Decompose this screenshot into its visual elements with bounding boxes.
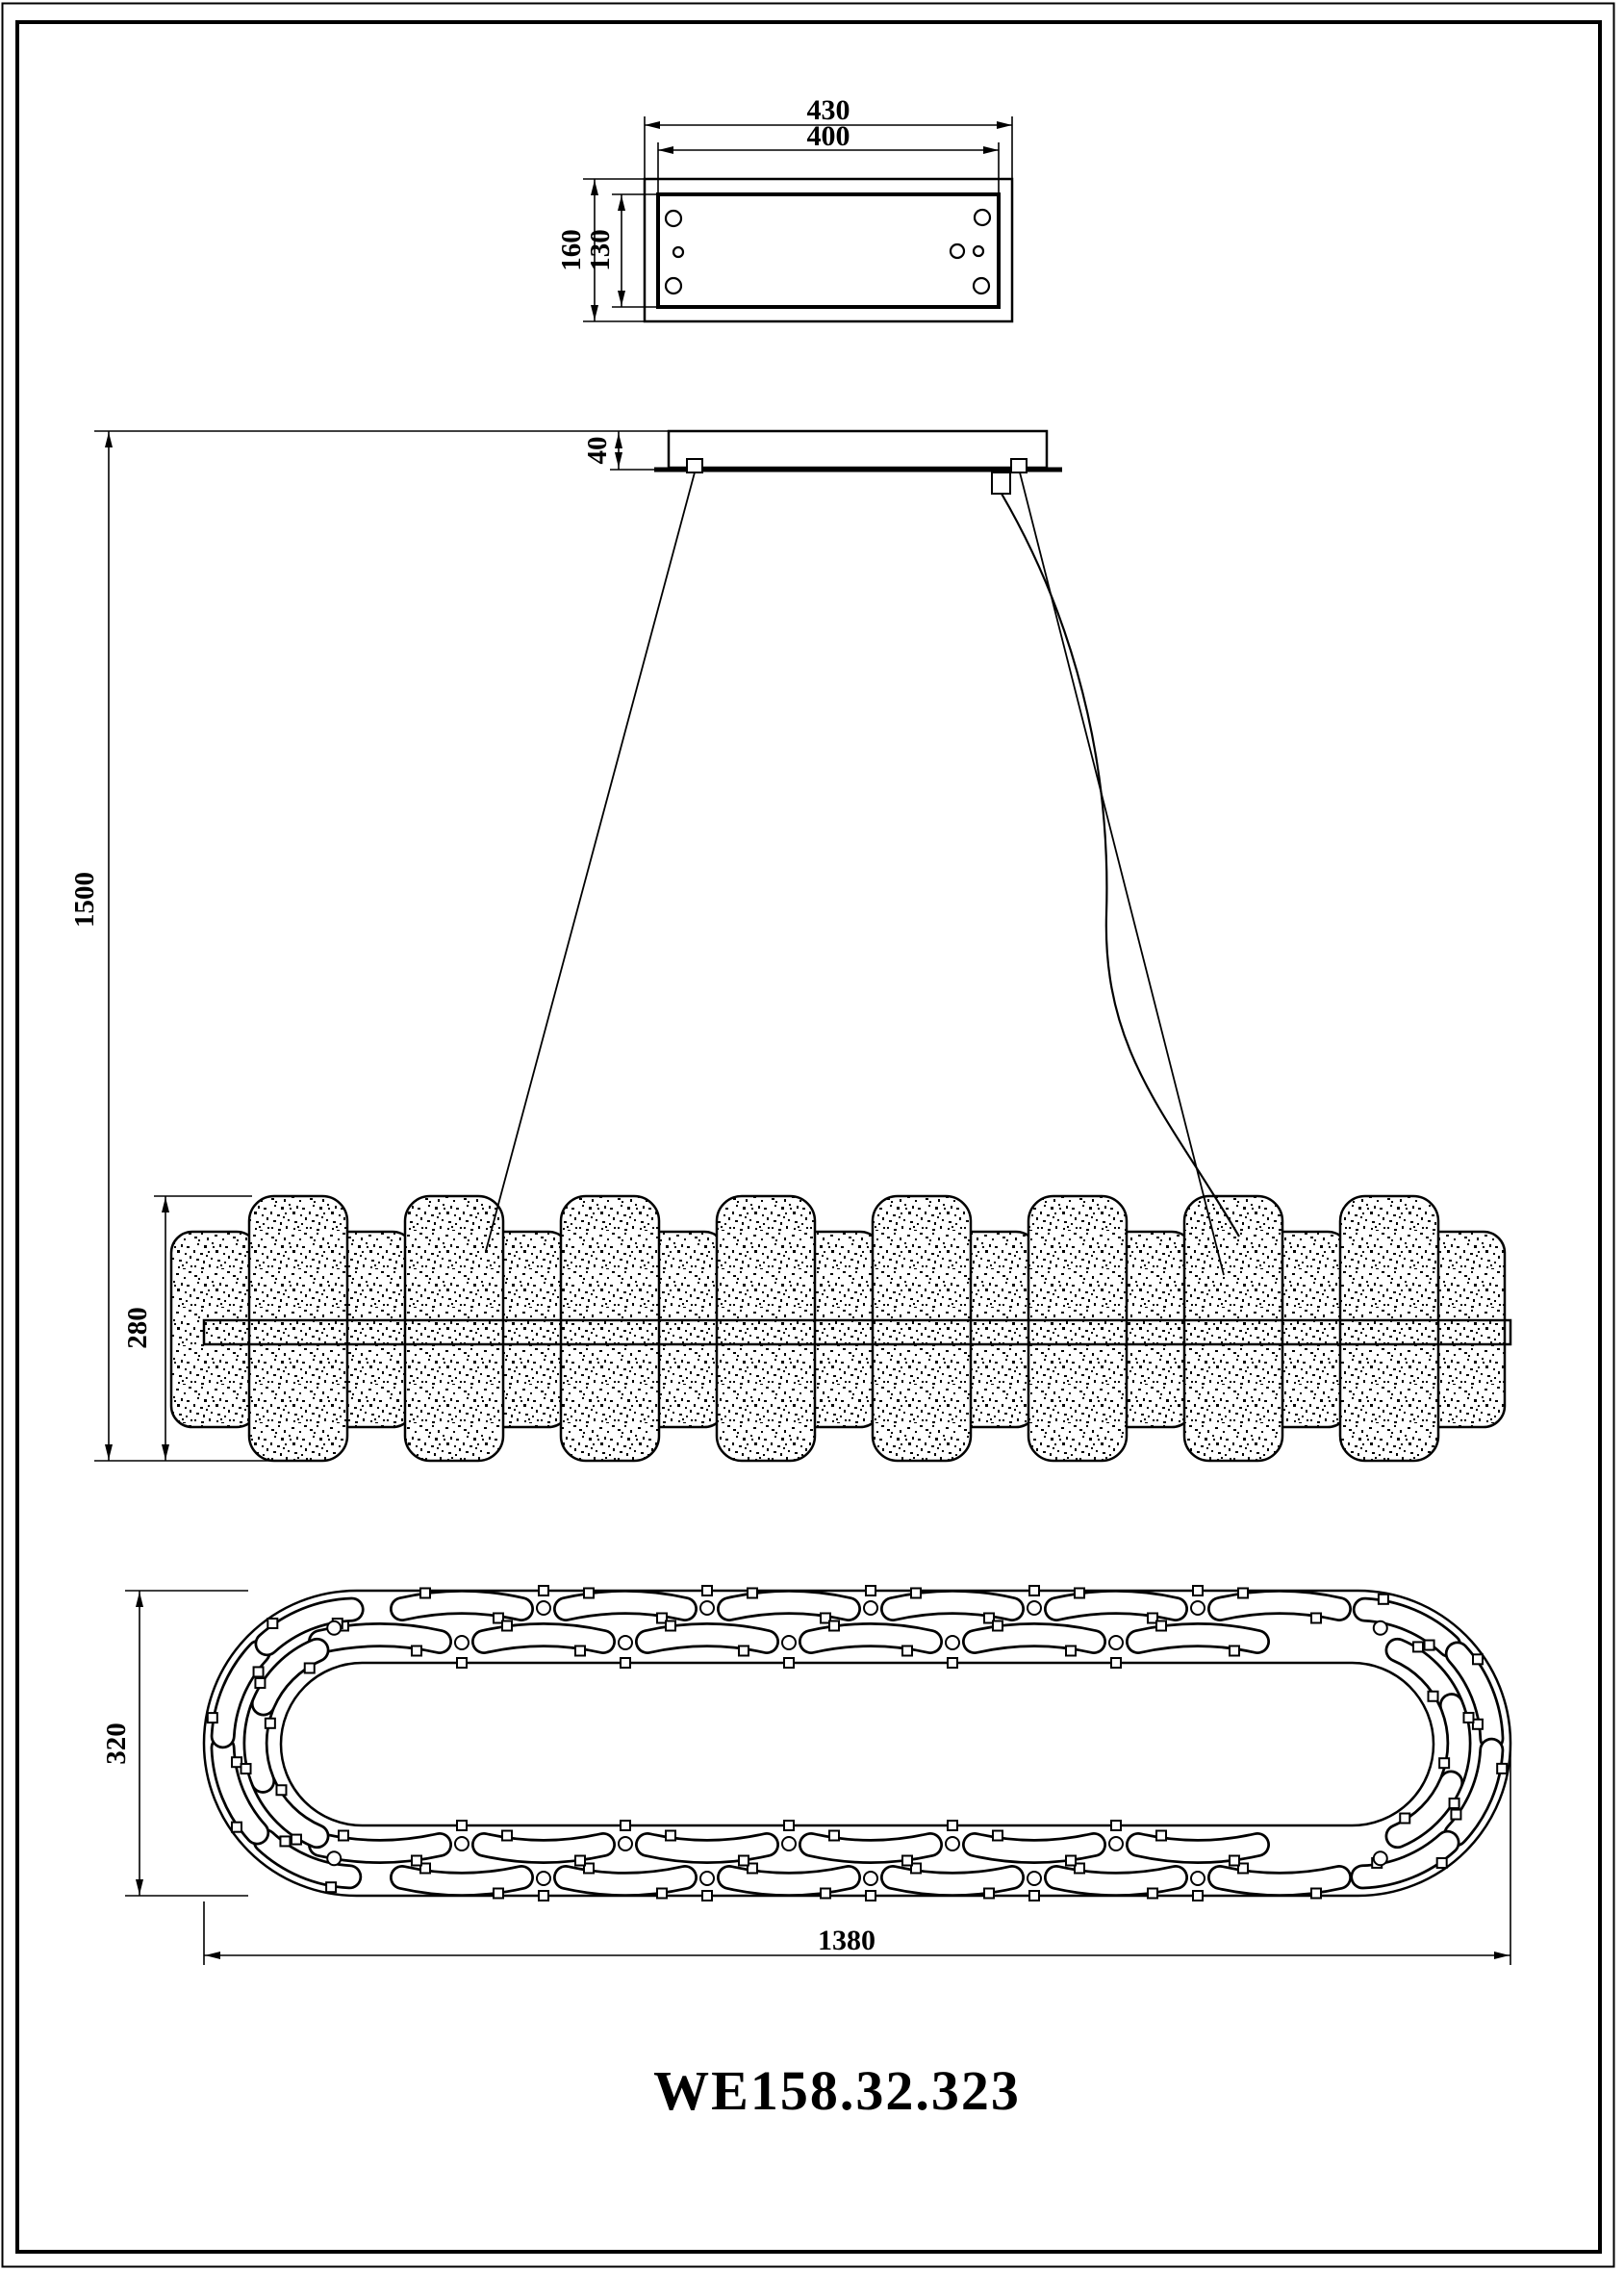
- ring-hole: [619, 1837, 632, 1850]
- crystal-slot-arc: [264, 1650, 317, 1704]
- crystal-pin-square: [984, 1889, 994, 1899]
- ring-hole: [1028, 1601, 1041, 1615]
- crystal-pin-square: [280, 1836, 290, 1846]
- crystal-pin-square: [339, 1831, 348, 1841]
- crystal-pin-square: [457, 1658, 467, 1668]
- crystal-pin-square: [993, 1621, 1002, 1631]
- crystal-pin-square: [1429, 1692, 1438, 1701]
- ring-hole: [537, 1872, 550, 1885]
- crystal-pin-square: [1379, 1595, 1388, 1604]
- crystal-slot: [1220, 1877, 1339, 1884]
- crystal-slot: [402, 1602, 521, 1609]
- crystal-pin-square: [911, 1589, 921, 1598]
- crystal-pin-square: [1066, 1856, 1076, 1866]
- crystal-slot-arc: [264, 1783, 317, 1837]
- ring-inner-edge: [281, 1663, 1434, 1825]
- crystal-pin-square: [1238, 1589, 1248, 1598]
- crystal-pin-square: [1311, 1889, 1321, 1899]
- crystal-pin-square: [1111, 1658, 1121, 1668]
- arrowhead: [618, 291, 625, 306]
- crystal-pin-square: [1075, 1589, 1084, 1598]
- ring-hole: [619, 1636, 632, 1649]
- crystal-pin-square: [1111, 1821, 1121, 1830]
- arrowhead: [105, 432, 113, 447]
- crystal-pin-square: [621, 1821, 630, 1830]
- crystal-pin-square: [254, 1667, 264, 1676]
- ring-hole: [1374, 1851, 1387, 1865]
- crystal-slot: [1220, 1602, 1339, 1609]
- crystal-pin-square: [241, 1764, 251, 1773]
- crystal-pin-square: [1473, 1654, 1483, 1664]
- crystal-slot: [1138, 1845, 1257, 1851]
- crystal-slot: [1056, 1877, 1176, 1884]
- crystal-slot: [893, 1602, 1012, 1609]
- crystal-slot-arc: [1452, 1705, 1459, 1781]
- crystal-slot-arc: [256, 1705, 264, 1781]
- ring-hole: [946, 1837, 959, 1850]
- arrowhead: [591, 305, 598, 320]
- glass-panel-tall: [1340, 1196, 1438, 1461]
- crystal-pin-square: [1451, 1810, 1460, 1820]
- crystal-pin-square: [1230, 1856, 1239, 1866]
- crystal-pin-square: [1029, 1891, 1039, 1901]
- ring-hole: [782, 1837, 796, 1850]
- glass-panel-tall: [1028, 1196, 1127, 1461]
- crystal-pin-square: [666, 1831, 675, 1841]
- arrowhead: [591, 180, 598, 195]
- side-view: [171, 431, 1510, 1461]
- crystal-slot-arc: [1398, 1783, 1452, 1837]
- ring-hole: [864, 1601, 877, 1615]
- drawing-sheet: 430 400 160 130 40 1500 280 320 1380 WE1…: [0, 0, 1624, 2271]
- arrowhead: [1494, 1952, 1510, 1959]
- ring-hole: [700, 1601, 714, 1615]
- glass-panel-tall: [717, 1196, 815, 1461]
- crystal-pin-square: [1311, 1614, 1321, 1623]
- crystal-slot: [320, 1635, 440, 1642]
- crystal-slot: [975, 1845, 1094, 1851]
- crystal-pin-square: [1463, 1713, 1473, 1722]
- left-wire-gripper: [687, 459, 702, 472]
- canopy-top-view: [645, 179, 1012, 321]
- crystal-slot: [566, 1877, 685, 1884]
- ring-hole: [327, 1621, 341, 1635]
- arrowhead: [618, 195, 625, 211]
- dim-label-1500: 1500: [69, 872, 100, 928]
- crystal-pin-square: [494, 1889, 503, 1899]
- arrowhead: [105, 1444, 113, 1460]
- arrowhead: [997, 121, 1012, 129]
- crystal-pin-square: [1450, 1799, 1459, 1808]
- arrowhead: [136, 1879, 143, 1895]
- crystal-pin-square: [305, 1663, 315, 1672]
- crystal-slot: [484, 1635, 603, 1642]
- crystal-slot: [484, 1845, 603, 1851]
- crystal-pin-square: [829, 1831, 839, 1841]
- crystal-slot: [1056, 1602, 1176, 1609]
- crystal-pin-square: [1156, 1621, 1166, 1631]
- crystal-pin-square: [457, 1821, 467, 1830]
- crystal-pin-square: [1413, 1642, 1423, 1651]
- crystal-pin-square: [575, 1646, 585, 1656]
- ring-hole: [864, 1872, 877, 1885]
- crystal-slot: [811, 1845, 930, 1851]
- crystal-pin-square: [784, 1658, 794, 1668]
- crystal-pin-square: [948, 1658, 957, 1668]
- crystal-slot: [893, 1877, 1012, 1884]
- crystal-pin-square: [702, 1891, 712, 1901]
- ring-decoration: [208, 1586, 1507, 1901]
- crystal-slot: [647, 1635, 767, 1642]
- crystal-slot: [1138, 1635, 1257, 1642]
- crystal-pin-square: [902, 1646, 912, 1656]
- ring-hole: [1191, 1601, 1205, 1615]
- crystal-pin-square: [292, 1835, 301, 1845]
- arrowhead: [205, 1952, 220, 1959]
- bottom-view: [204, 1586, 1510, 1901]
- inner-page-border: [17, 22, 1600, 2252]
- arrowhead: [615, 433, 622, 448]
- arrowhead: [658, 146, 673, 154]
- crystal-pin-square: [993, 1831, 1002, 1841]
- crystal-pin-square: [502, 1621, 512, 1631]
- crystal-pin-square: [666, 1621, 675, 1631]
- crystal-pin-square: [1230, 1646, 1239, 1656]
- crystal-pin-square: [208, 1713, 217, 1722]
- dim-label-1380: 1380: [818, 1925, 875, 1956]
- crystal-slot-arc: [1398, 1650, 1452, 1704]
- crystal-slot: [811, 1635, 930, 1642]
- crystal-pin-square: [866, 1586, 875, 1595]
- crystal-pin-square: [739, 1646, 749, 1656]
- crystal-pin-square: [702, 1586, 712, 1595]
- crystal-pin-square: [621, 1658, 630, 1668]
- right-wire-gripper: [1011, 459, 1027, 472]
- dim-label-130: 130: [585, 229, 616, 271]
- dim-label-160: 160: [556, 229, 587, 271]
- fixture-side-body: [171, 1196, 1505, 1461]
- crystal-pin-square: [821, 1889, 830, 1899]
- arrowhead: [615, 452, 622, 468]
- crystal-pin-square: [657, 1889, 667, 1899]
- crystal-pin-square: [276, 1785, 286, 1795]
- glass-panel-tall: [249, 1196, 347, 1461]
- canopy-side: [669, 431, 1047, 468]
- crystal-pin-square: [866, 1891, 875, 1901]
- crystal-pin-square: [412, 1646, 421, 1656]
- glass-panel-tall: [1184, 1196, 1282, 1461]
- crystal-pin-square: [1400, 1814, 1409, 1824]
- crystal-pin-square: [539, 1891, 548, 1901]
- technical-drawing: 430 400 160 130 40 1500 280 320 1380 WE1…: [0, 0, 1624, 2271]
- crystal-pin-square: [266, 1719, 275, 1728]
- ring-hole: [782, 1636, 796, 1649]
- dim-label-280: 280: [122, 1307, 153, 1349]
- dimension-arrows: [105, 121, 1510, 1959]
- dim-label-40: 40: [582, 437, 613, 465]
- crystal-pin-square: [1425, 1641, 1434, 1650]
- crystal-slot: [729, 1877, 849, 1884]
- ring-hole: [946, 1636, 959, 1649]
- crystal-pin-square: [1193, 1891, 1203, 1901]
- dimension-lines: [94, 116, 1510, 1965]
- glass-panel-short: [171, 1232, 258, 1427]
- crystal-pin-square: [575, 1856, 585, 1866]
- crystal-pin-square: [748, 1589, 757, 1598]
- ring-hole: [327, 1851, 341, 1865]
- arrowhead: [645, 121, 660, 129]
- crystal-pin-square: [539, 1586, 548, 1595]
- glass-panel-tall: [873, 1196, 971, 1461]
- crystal-pin-square: [502, 1831, 512, 1841]
- crystal-pin-square: [739, 1856, 749, 1866]
- ring-hole: [1028, 1872, 1041, 1885]
- crystal-slot: [402, 1877, 521, 1884]
- arrowhead: [162, 1197, 169, 1212]
- ring-hole: [700, 1872, 714, 1885]
- mounting-holes: [666, 210, 990, 293]
- crystal-slot: [647, 1845, 767, 1851]
- cord-grip-box: [992, 472, 1010, 494]
- crystal-pin-square: [902, 1856, 912, 1866]
- ring-hole: [537, 1601, 550, 1615]
- crystal-pin-square: [1437, 1858, 1447, 1868]
- crystal-pin-square: [1193, 1586, 1203, 1595]
- ring-hole: [1109, 1837, 1123, 1850]
- dim-label-400: 400: [807, 120, 850, 152]
- crystal-pin-square: [1029, 1586, 1039, 1595]
- arrowhead: [162, 1444, 169, 1460]
- arrowhead: [136, 1592, 143, 1607]
- outer-page-border: [3, 4, 1614, 2267]
- crystal-pin-square: [829, 1621, 839, 1631]
- crystal-pin-square: [1497, 1764, 1507, 1773]
- ring-hole: [1109, 1636, 1123, 1649]
- canopy-inner-plate: [658, 194, 999, 307]
- glass-panel-tall: [561, 1196, 659, 1461]
- crystal-pin-square: [948, 1821, 957, 1830]
- crystal-pin-square: [584, 1589, 594, 1598]
- dim-label-320: 320: [101, 1722, 132, 1765]
- crystal-pin-square: [1156, 1831, 1166, 1841]
- crystal-slot: [975, 1635, 1094, 1642]
- crystal-pin-square: [784, 1821, 794, 1830]
- crystal-slot: [320, 1845, 440, 1851]
- arrowhead: [983, 146, 999, 154]
- ring-hole: [455, 1837, 469, 1850]
- crystal-pin-square: [1439, 1758, 1449, 1768]
- crystal-pin-square: [255, 1678, 265, 1688]
- ring-hole: [1191, 1872, 1205, 1885]
- ring-hole: [455, 1636, 469, 1649]
- crystal-slot: [729, 1602, 849, 1609]
- glass-panel-tall: [405, 1196, 503, 1461]
- crystal-pin-square: [326, 1882, 336, 1892]
- model-number: WE158.32.323: [653, 2059, 1021, 2122]
- crystal-pin-square: [420, 1589, 430, 1598]
- crystal-pin-square: [412, 1856, 421, 1866]
- crystal-slot: [566, 1602, 685, 1609]
- crystal-pin-square: [1066, 1646, 1076, 1656]
- left-suspension-wire: [486, 472, 695, 1251]
- crystal-pin-square: [232, 1823, 241, 1832]
- ring-hole: [1374, 1621, 1387, 1635]
- crystal-pin-square: [1148, 1889, 1157, 1899]
- crystal-pin-square: [267, 1619, 277, 1628]
